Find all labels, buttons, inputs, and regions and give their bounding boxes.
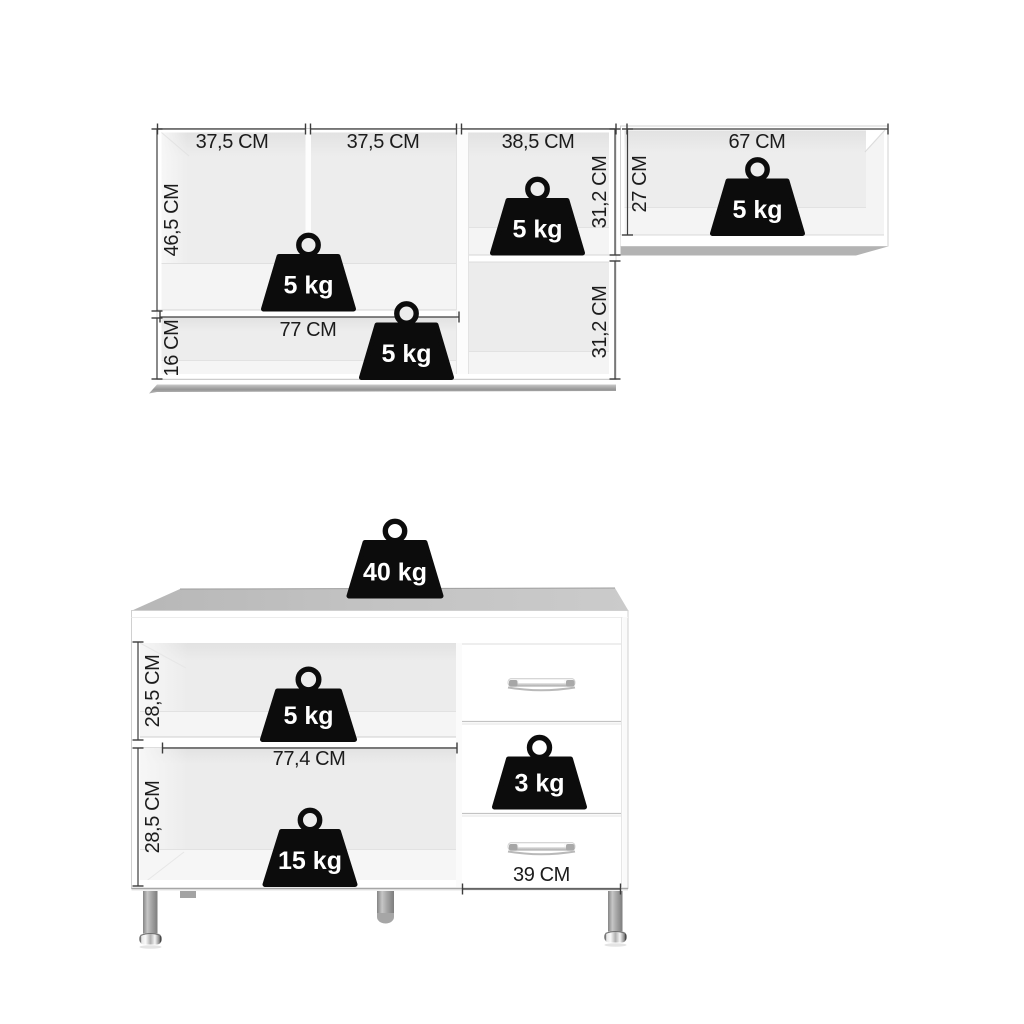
svg-text:38,5 CM: 38,5 CM: [502, 131, 575, 153]
svg-text:31,2 CM: 31,2 CM: [589, 156, 611, 229]
svg-text:5 kg: 5 kg: [283, 272, 333, 300]
svg-text:77 CM: 77 CM: [280, 319, 337, 341]
svg-text:5 kg: 5 kg: [283, 702, 333, 730]
svg-text:5 kg: 5 kg: [512, 216, 562, 244]
svg-text:28,5 CM: 28,5 CM: [142, 781, 164, 854]
svg-text:27 CM: 27 CM: [629, 156, 651, 213]
svg-text:77,4 CM: 77,4 CM: [273, 748, 346, 770]
svg-text:5 kg: 5 kg: [381, 340, 431, 368]
svg-text:40 kg: 40 kg: [363, 559, 427, 587]
svg-text:5 kg: 5 kg: [732, 196, 782, 224]
svg-text:3 kg: 3 kg: [514, 770, 564, 798]
svg-text:37,5 CM: 37,5 CM: [196, 131, 269, 153]
svg-text:16 CM: 16 CM: [161, 320, 183, 377]
svg-text:31,2 CM: 31,2 CM: [589, 286, 611, 359]
svg-text:67 CM: 67 CM: [729, 131, 786, 153]
svg-text:46,5 CM: 46,5 CM: [161, 184, 183, 257]
svg-text:28,5 CM: 28,5 CM: [142, 655, 164, 728]
svg-text:15 kg: 15 kg: [278, 847, 342, 875]
svg-text:37,5 CM: 37,5 CM: [347, 131, 420, 153]
svg-text:39 CM: 39 CM: [513, 864, 570, 886]
